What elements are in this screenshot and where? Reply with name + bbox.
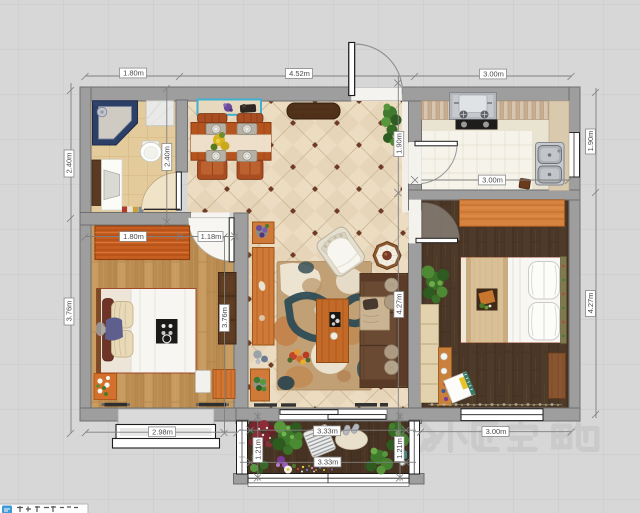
svg-text:1.18m: 1.18m bbox=[201, 232, 222, 241]
svg-text:3.76m: 3.76m bbox=[220, 307, 229, 328]
svg-text:1.90m: 1.90m bbox=[395, 133, 404, 154]
svg-text:3.00m: 3.00m bbox=[486, 427, 507, 436]
svg-text:3.33m: 3.33m bbox=[317, 427, 338, 436]
svg-text:4.52m: 4.52m bbox=[289, 69, 310, 78]
svg-text:4.27m: 4.27m bbox=[586, 293, 595, 314]
svg-text:1.21m: 1.21m bbox=[395, 438, 404, 459]
svg-text:2.40m: 2.40m bbox=[163, 146, 172, 167]
svg-text:1.80m: 1.80m bbox=[123, 69, 144, 78]
svg-text:3.00m: 3.00m bbox=[483, 70, 504, 79]
svg-text:1.21m: 1.21m bbox=[253, 439, 262, 460]
svg-text:1.90m: 1.90m bbox=[586, 131, 595, 152]
svg-text:3.76m: 3.76m bbox=[65, 301, 74, 322]
svg-text:2.98m: 2.98m bbox=[152, 428, 173, 437]
svg-text:1.80m: 1.80m bbox=[123, 232, 144, 241]
svg-text:2.40m: 2.40m bbox=[65, 153, 74, 174]
svg-text:3.00m: 3.00m bbox=[482, 176, 503, 185]
svg-text:3.33m: 3.33m bbox=[318, 458, 339, 467]
svg-text:4.27m: 4.27m bbox=[395, 294, 404, 315]
